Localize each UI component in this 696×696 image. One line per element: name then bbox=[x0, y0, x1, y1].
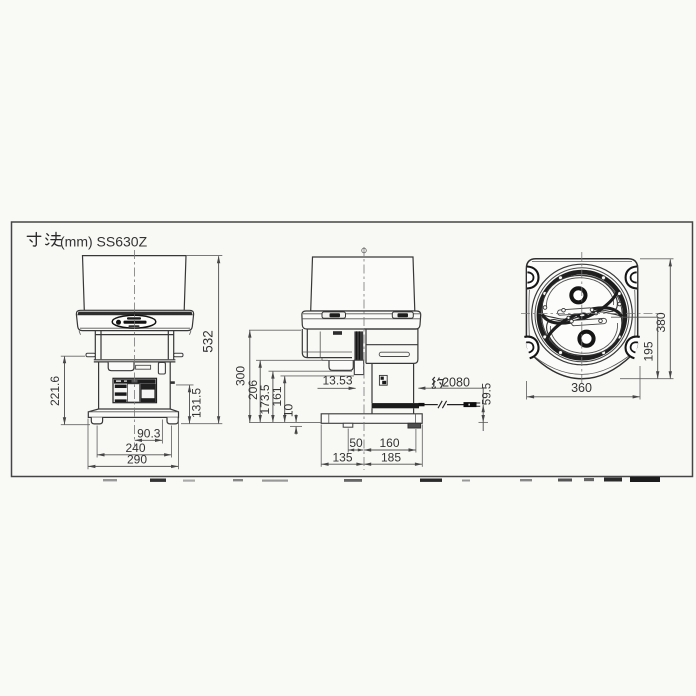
svg-text:185: 185 bbox=[381, 450, 401, 464]
svg-text:532: 532 bbox=[201, 330, 216, 353]
svg-text:13.53: 13.53 bbox=[322, 374, 352, 388]
svg-text:221.6: 221.6 bbox=[48, 376, 62, 406]
svg-text:380: 380 bbox=[654, 312, 668, 332]
svg-text:(mm) SS630Z: (mm) SS630Z bbox=[60, 233, 148, 249]
svg-text:135: 135 bbox=[332, 450, 352, 464]
svg-text:131.5: 131.5 bbox=[190, 388, 204, 418]
svg-text:50: 50 bbox=[349, 436, 363, 450]
svg-text:2080: 2080 bbox=[442, 376, 470, 390]
svg-text:160: 160 bbox=[379, 436, 399, 450]
svg-text:161: 161 bbox=[270, 386, 284, 406]
svg-text:290: 290 bbox=[127, 453, 147, 467]
svg-text:90.3: 90.3 bbox=[137, 427, 161, 441]
svg-text:59.5: 59.5 bbox=[481, 383, 493, 405]
svg-text:10: 10 bbox=[281, 404, 295, 418]
svg-text:360: 360 bbox=[571, 381, 592, 395]
svg-text:195: 195 bbox=[641, 341, 655, 361]
